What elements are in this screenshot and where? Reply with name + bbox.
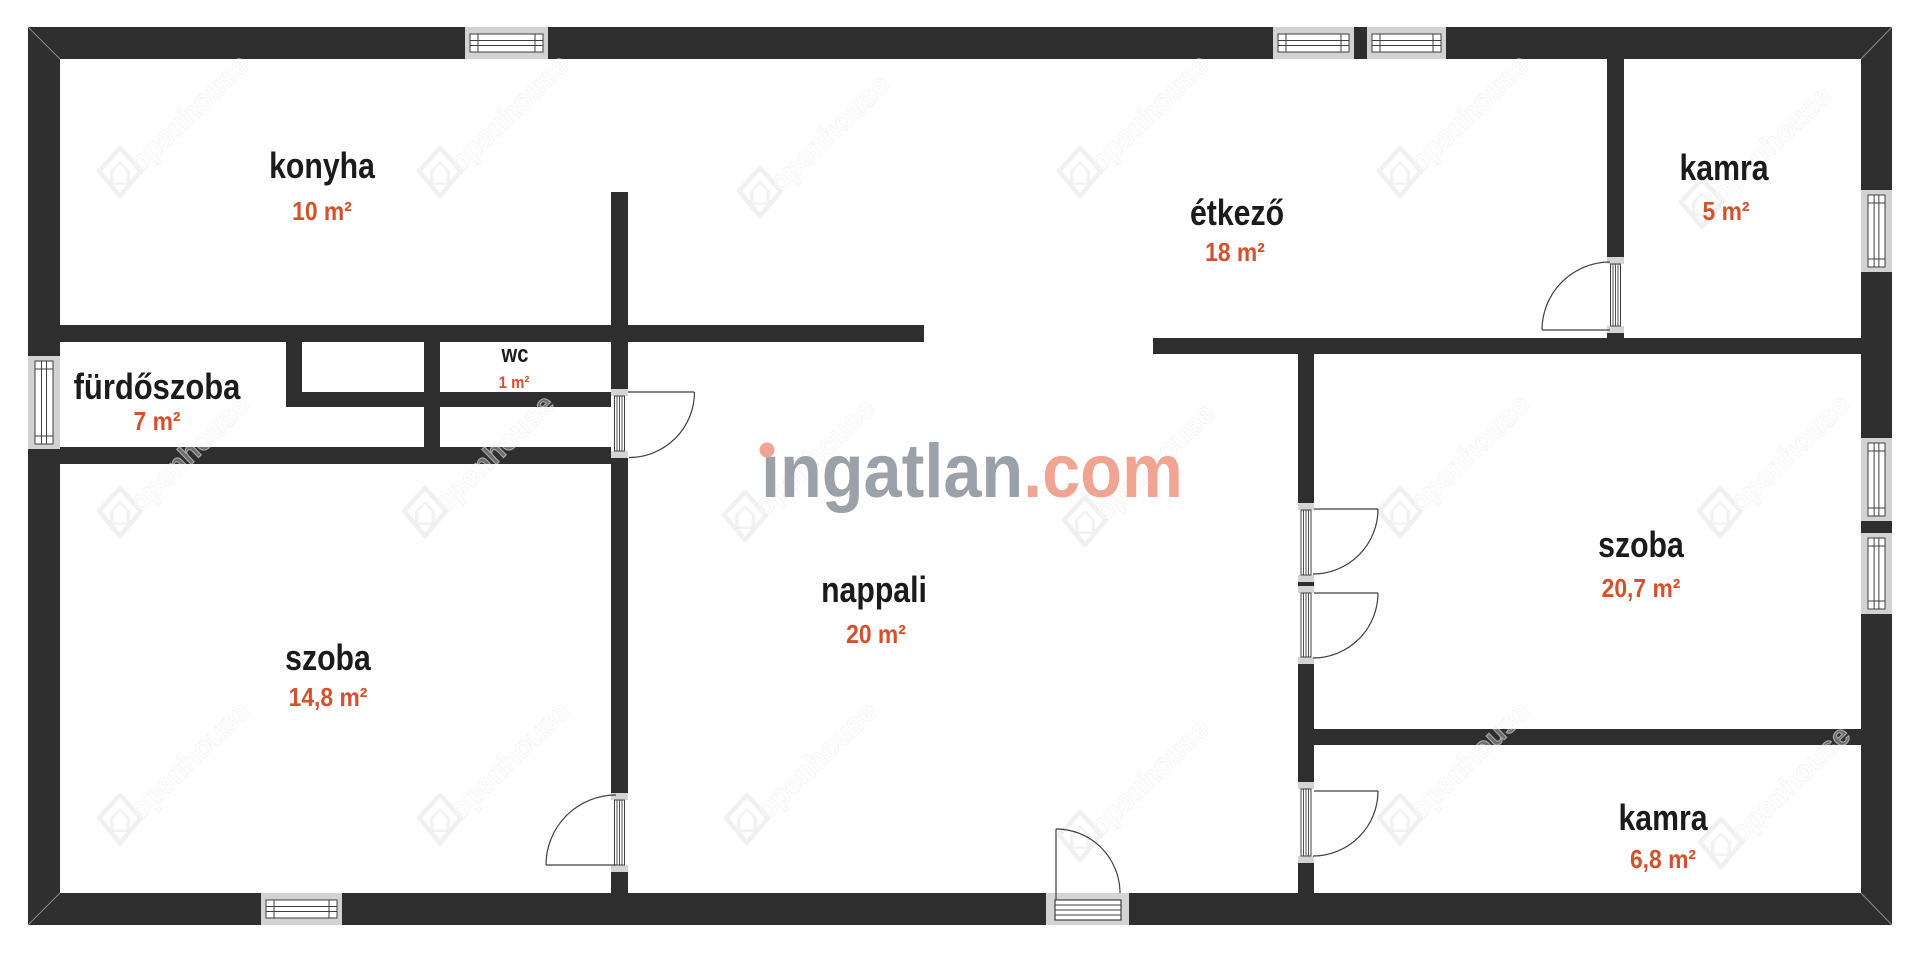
svg-text:1 m²: 1 m² — [499, 374, 530, 392]
svg-text:kamra: kamra — [1618, 799, 1708, 839]
svg-text:14,8 m²: 14,8 m² — [289, 684, 368, 713]
svg-text:szoba: szoba — [1598, 526, 1684, 566]
svg-text:konyha: konyha — [269, 147, 375, 187]
svg-text:20 m²: 20 m² — [846, 621, 906, 650]
svg-text:szoba: szoba — [285, 639, 371, 679]
svg-text:fürdőszoba: fürdőszoba — [74, 368, 241, 408]
svg-text:wc: wc — [501, 340, 529, 367]
svg-text:5 m²: 5 m² — [1702, 198, 1749, 227]
svg-text:ıngatlan.com: ıngatlan.com — [761, 430, 1183, 514]
svg-text:18 m²: 18 m² — [1205, 239, 1265, 268]
svg-text:20,7 m²: 20,7 m² — [1602, 575, 1681, 604]
svg-text:étkező: étkező — [1190, 194, 1284, 234]
svg-text:6,8 m²: 6,8 m² — [1630, 846, 1696, 875]
svg-text:nappali: nappali — [821, 571, 927, 611]
svg-text:7 m²: 7 m² — [133, 408, 180, 437]
svg-text:10 m²: 10 m² — [292, 198, 352, 227]
svg-text:kamra: kamra — [1679, 149, 1769, 189]
